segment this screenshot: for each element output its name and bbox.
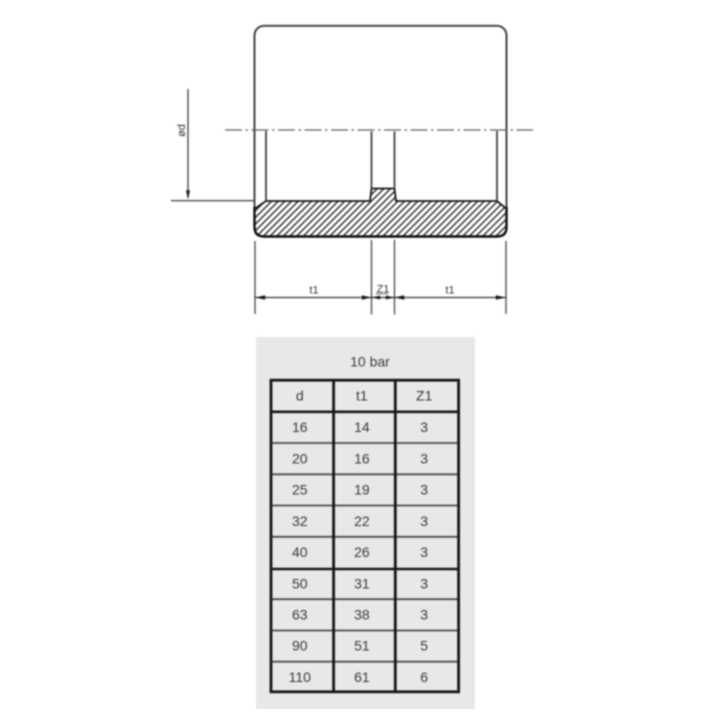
svg-text:10 bar: 10 bar <box>350 353 390 369</box>
svg-text:16: 16 <box>354 450 370 466</box>
svg-text:3: 3 <box>420 450 428 466</box>
svg-text:19: 19 <box>354 482 370 498</box>
svg-text:3: 3 <box>420 513 428 529</box>
svg-text:31: 31 <box>354 575 370 591</box>
svg-text:3: 3 <box>420 482 428 498</box>
svg-text:22: 22 <box>354 513 370 529</box>
svg-text:3: 3 <box>420 607 428 623</box>
svg-text:61: 61 <box>354 669 370 685</box>
svg-text:d: d <box>296 388 304 404</box>
svg-text:50: 50 <box>292 575 308 591</box>
svg-text:51: 51 <box>354 638 370 654</box>
svg-text:20: 20 <box>292 450 308 466</box>
svg-text:25: 25 <box>292 482 308 498</box>
svg-text:t1: t1 <box>445 285 454 297</box>
svg-text:63: 63 <box>292 607 308 623</box>
svg-text:3: 3 <box>420 419 428 435</box>
svg-text:14: 14 <box>354 419 370 435</box>
svg-text:Z1: Z1 <box>416 388 433 404</box>
svg-text:110: 110 <box>289 669 312 685</box>
svg-text:5: 5 <box>420 638 428 654</box>
svg-text:3: 3 <box>420 544 428 560</box>
svg-text:90: 90 <box>292 638 308 654</box>
svg-text:3: 3 <box>420 575 428 591</box>
svg-text:40: 40 <box>292 544 308 560</box>
svg-text:ød: ød <box>176 124 188 137</box>
svg-text:t1: t1 <box>309 285 318 297</box>
svg-text:6: 6 <box>420 669 428 685</box>
svg-text:t1: t1 <box>356 388 368 404</box>
svg-text:16: 16 <box>292 419 308 435</box>
svg-text:26: 26 <box>354 544 370 560</box>
svg-text:32: 32 <box>292 513 308 529</box>
svg-text:38: 38 <box>354 607 370 623</box>
